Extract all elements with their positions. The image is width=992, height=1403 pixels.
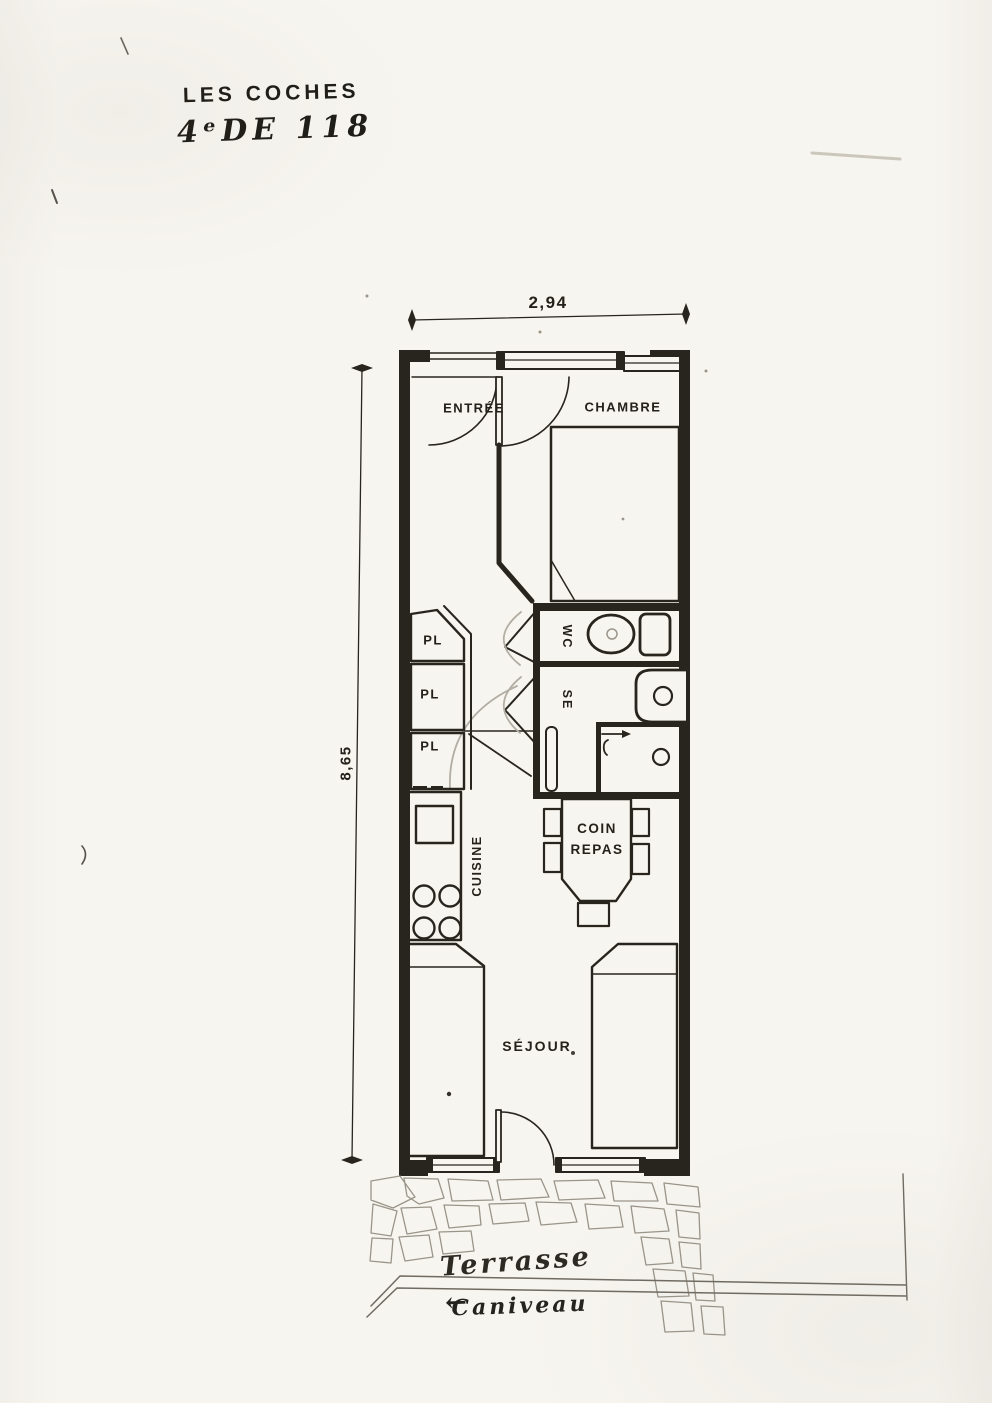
room-label-chambre: CHAMBRE bbox=[585, 400, 662, 415]
dimension-height-label: 8,65 bbox=[338, 745, 355, 780]
balcony-door-icon bbox=[496, 1110, 554, 1165]
dimension-width-label: 2,94 bbox=[528, 293, 567, 313]
floor-plan-drawing bbox=[0, 0, 992, 1403]
room-label-pl-1: PL bbox=[423, 633, 443, 648]
room-label-wc: WC bbox=[560, 625, 574, 650]
chambre-door-icon bbox=[496, 377, 569, 446]
sofa-right-icon bbox=[592, 944, 677, 1148]
plan-title: LES COCHES bbox=[183, 80, 360, 109]
window-bottom-right bbox=[556, 1158, 645, 1172]
room-label-sejour: SÉJOUR bbox=[502, 1038, 572, 1054]
room-label-pl-3: PL bbox=[420, 739, 440, 754]
room-label-cuisine: CUISINE bbox=[470, 835, 484, 896]
room-label-se: SE bbox=[560, 690, 574, 711]
bed-icon bbox=[551, 427, 679, 601]
stove-burners-icon bbox=[414, 886, 461, 939]
coin-repas-line-1: COIN bbox=[570, 818, 623, 839]
caniveau-label: Caniveau bbox=[451, 1291, 589, 1322]
room-label-pl-2: PL bbox=[420, 687, 440, 702]
shower-icon bbox=[602, 730, 669, 765]
coin-repas-line-2: REPAS bbox=[570, 839, 623, 860]
scan-noise bbox=[52, 38, 900, 1096]
sofa-left-icon bbox=[405, 944, 484, 1156]
scanned-floor-plan-page: LES COCHES 4ᵉDE 118 2,94 8,65 ENTRÉE CHA… bbox=[0, 0, 992, 1403]
room-label-entree: ENTRÉE bbox=[443, 401, 505, 416]
room-label-coin-repas: COIN REPAS bbox=[570, 818, 623, 860]
plan-subtitle: 4ᵉDE 118 bbox=[176, 109, 373, 151]
washbasin-icon bbox=[636, 670, 686, 722]
se-door-leaf-icon bbox=[505, 676, 557, 791]
toilet-icon bbox=[588, 614, 670, 655]
window-bottom-left bbox=[427, 1158, 499, 1172]
